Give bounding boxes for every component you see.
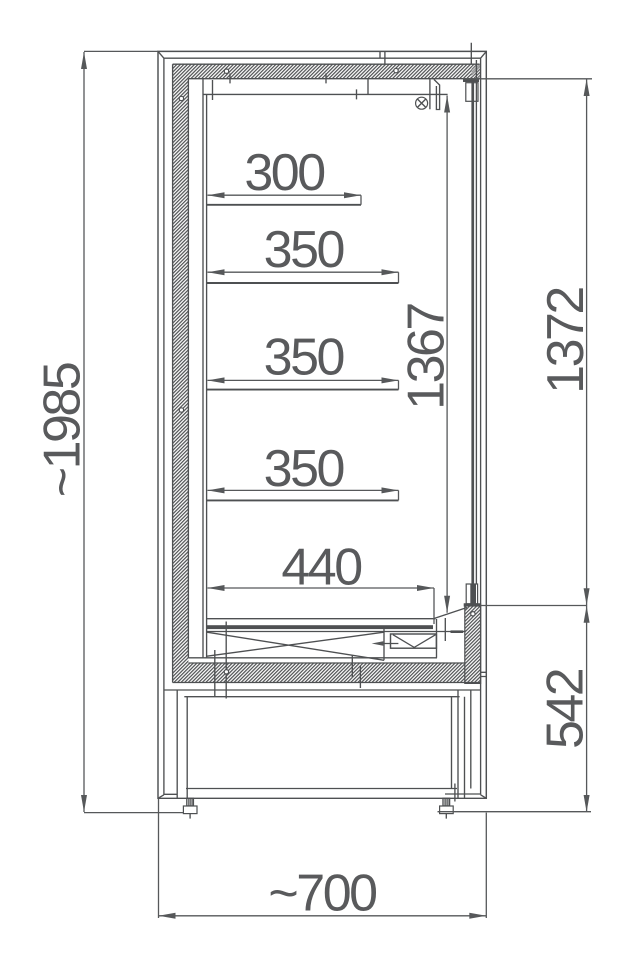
svg-text:1367: 1367 (398, 304, 456, 410)
svg-text:350: 350 (264, 329, 344, 387)
svg-text:350: 350 (264, 440, 344, 498)
svg-text:542: 542 (536, 669, 594, 749)
svg-text:1372: 1372 (537, 288, 595, 394)
svg-text:300: 300 (244, 144, 324, 202)
svg-text:350: 350 (264, 221, 344, 279)
svg-text:~1985: ~1985 (34, 363, 92, 497)
svg-text:440: 440 (281, 539, 361, 597)
svg-text:~700: ~700 (268, 864, 376, 922)
